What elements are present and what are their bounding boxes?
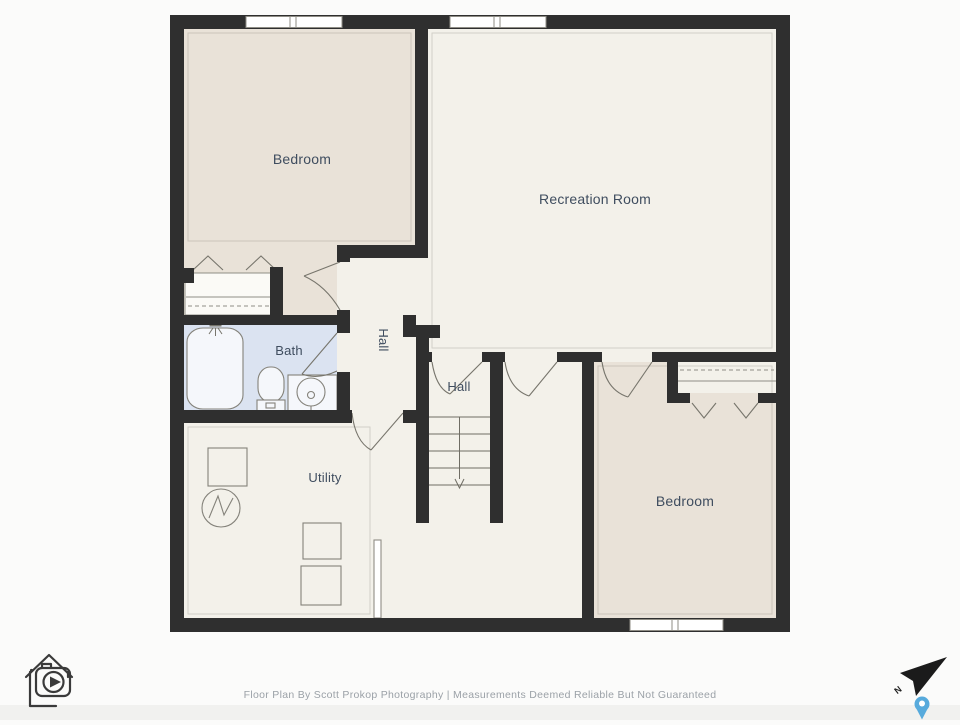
bottom-strip <box>0 705 960 720</box>
label-utility: Utility <box>308 470 341 485</box>
floor-plan-page: Bedroom Recreation Room Bath Hall Hall U… <box>0 0 960 720</box>
footer-credit: Floor Plan By Scott Prokop Photography |… <box>244 689 717 701</box>
label-bath: Bath <box>275 343 303 358</box>
closet-lower-bedroom <box>678 362 776 393</box>
sink-vanity <box>288 375 337 412</box>
half-wall <box>374 540 381 618</box>
toilet <box>257 367 285 412</box>
north-label: N <box>892 684 903 696</box>
window-bottom-bedroom <box>630 620 723 631</box>
label-bedroom-upper: Bedroom <box>273 151 331 167</box>
label-hall-horizontal: Hall <box>447 379 470 394</box>
label-bedroom-lower: Bedroom <box>656 493 714 509</box>
bathtub <box>187 328 243 409</box>
window-top-left <box>246 17 342 28</box>
north-arrow-icon: N <box>892 657 947 696</box>
label-hall-vertical: Hall <box>376 328 391 351</box>
house-camera-logo-icon <box>26 655 72 706</box>
floor-plan-canvas: Bedroom Recreation Room Bath Hall Hall U… <box>0 0 960 720</box>
window-top-right <box>450 17 546 28</box>
label-recreation-room: Recreation Room <box>539 191 651 207</box>
